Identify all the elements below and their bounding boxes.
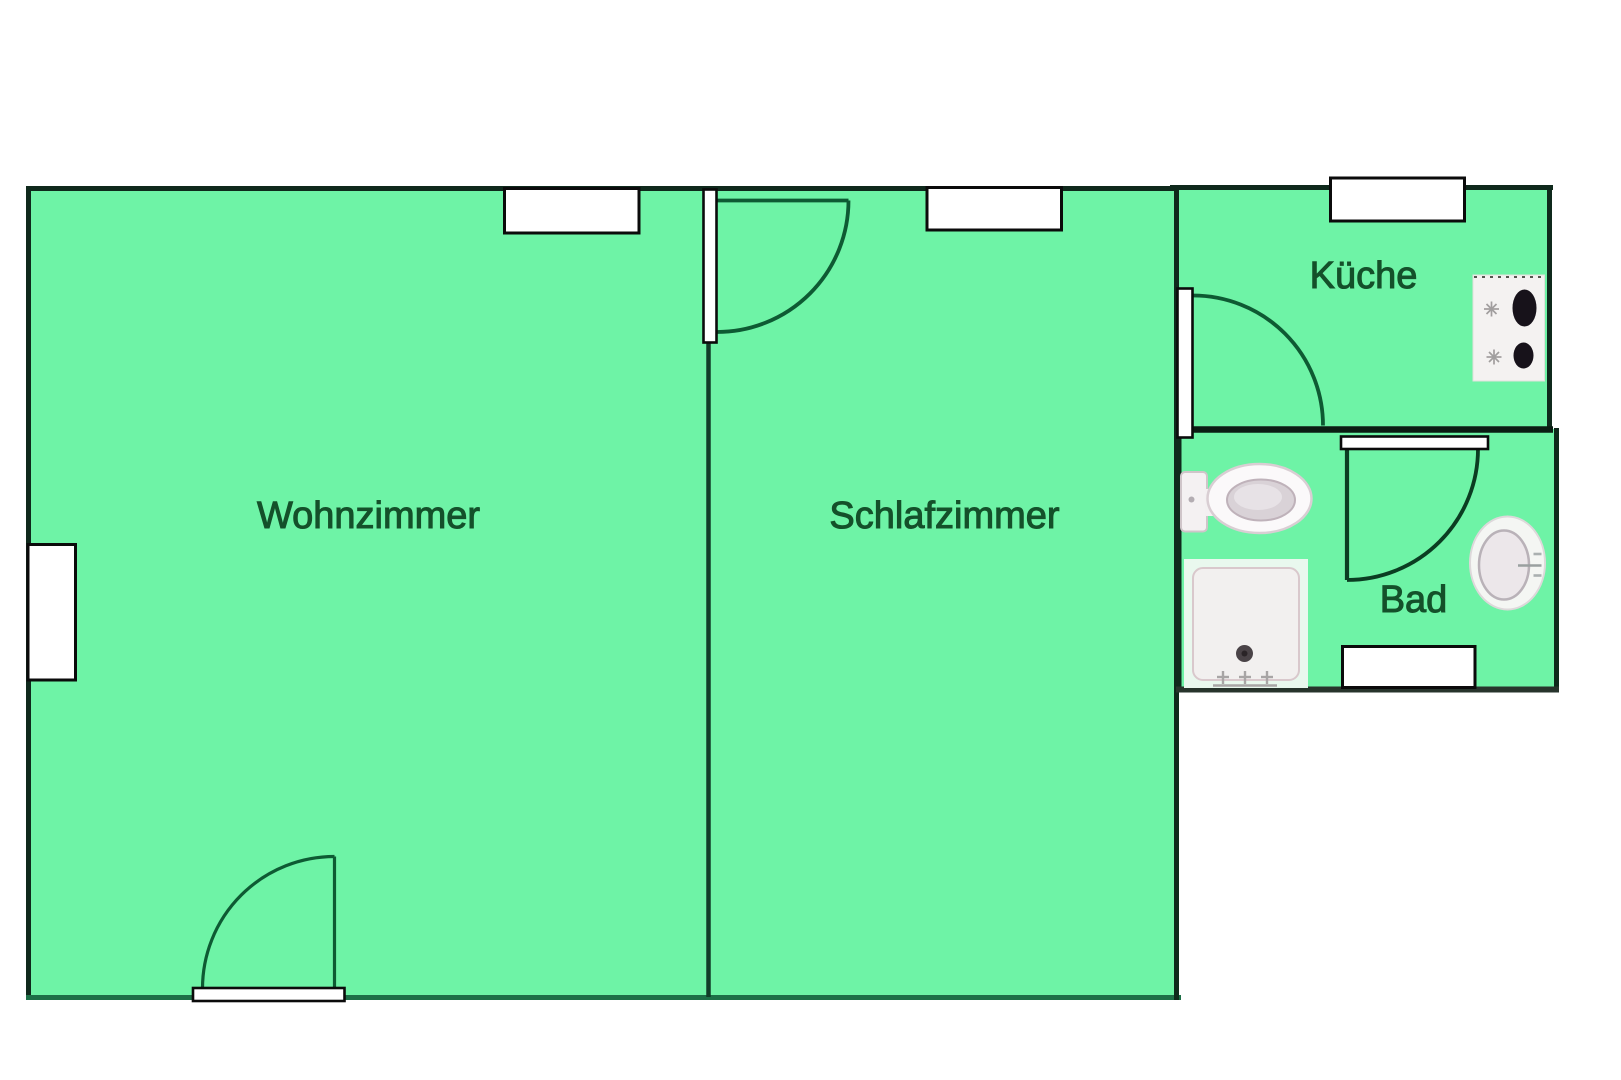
svg-text:Schlafzimmer: Schlafzimmer bbox=[829, 495, 1059, 537]
svg-text:Bad: Bad bbox=[1380, 579, 1448, 621]
svg-text:Wohnzimmer: Wohnzimmer bbox=[257, 495, 480, 537]
svg-text:Küche: Küche bbox=[1310, 255, 1418, 297]
